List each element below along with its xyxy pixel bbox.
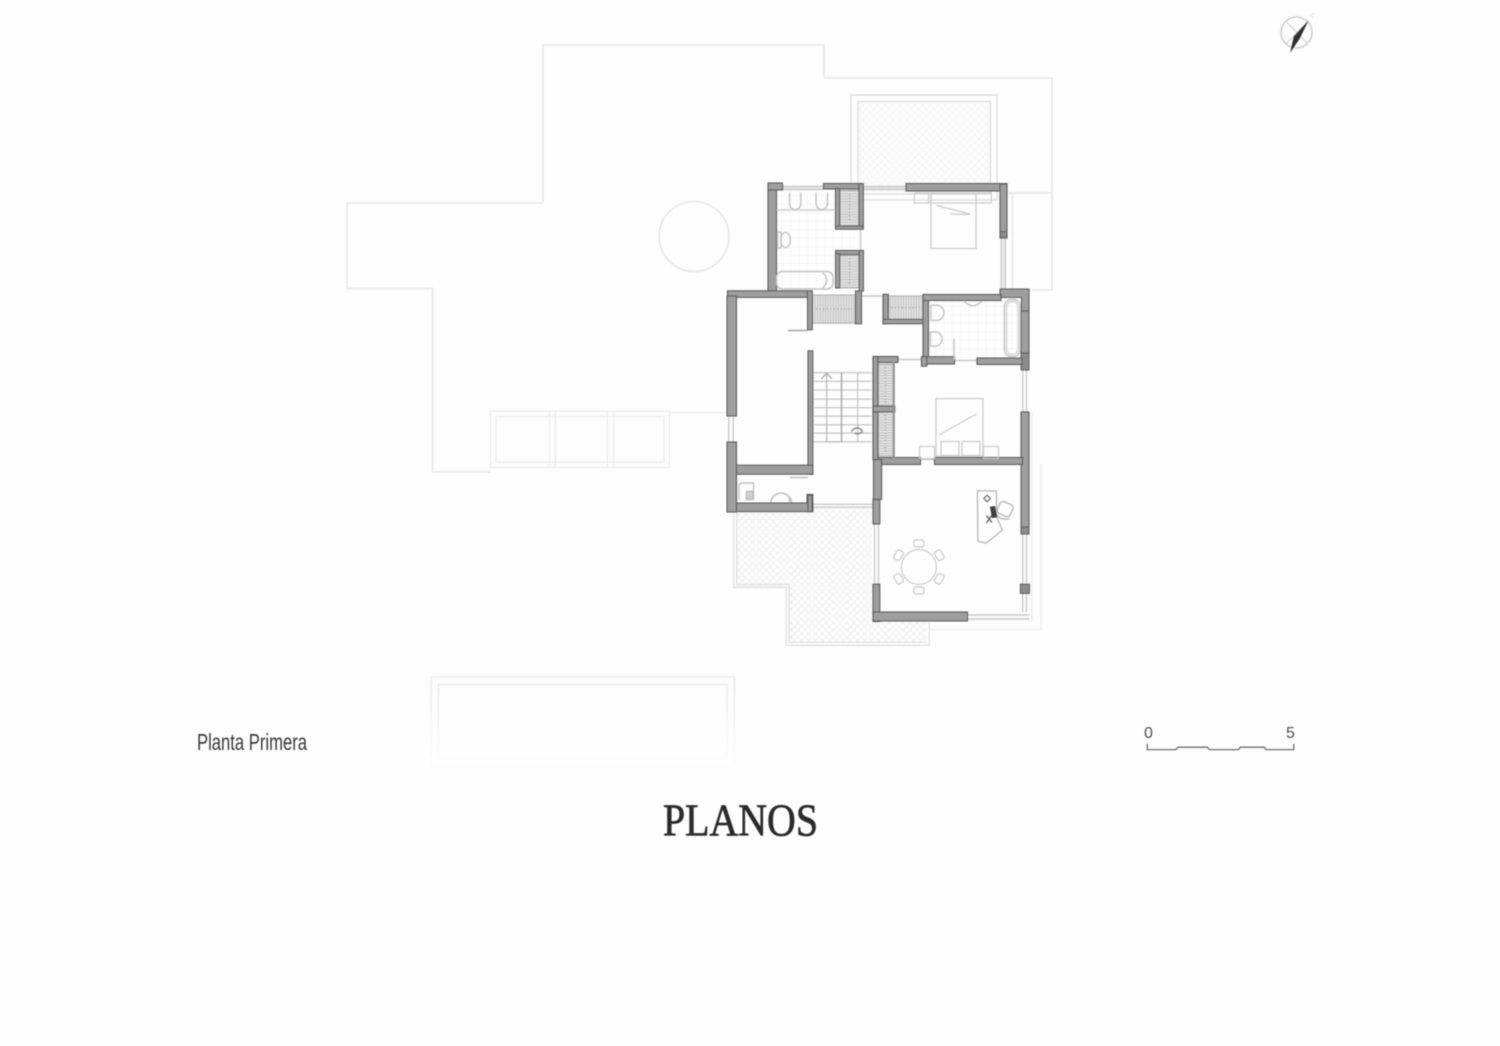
svg-text:Planta Primera: Planta Primera	[197, 729, 307, 755]
svg-text:0: 0	[1144, 725, 1153, 742]
svg-text:PLANOS: PLANOS	[663, 796, 818, 846]
svg-text:5: 5	[1286, 725, 1295, 742]
